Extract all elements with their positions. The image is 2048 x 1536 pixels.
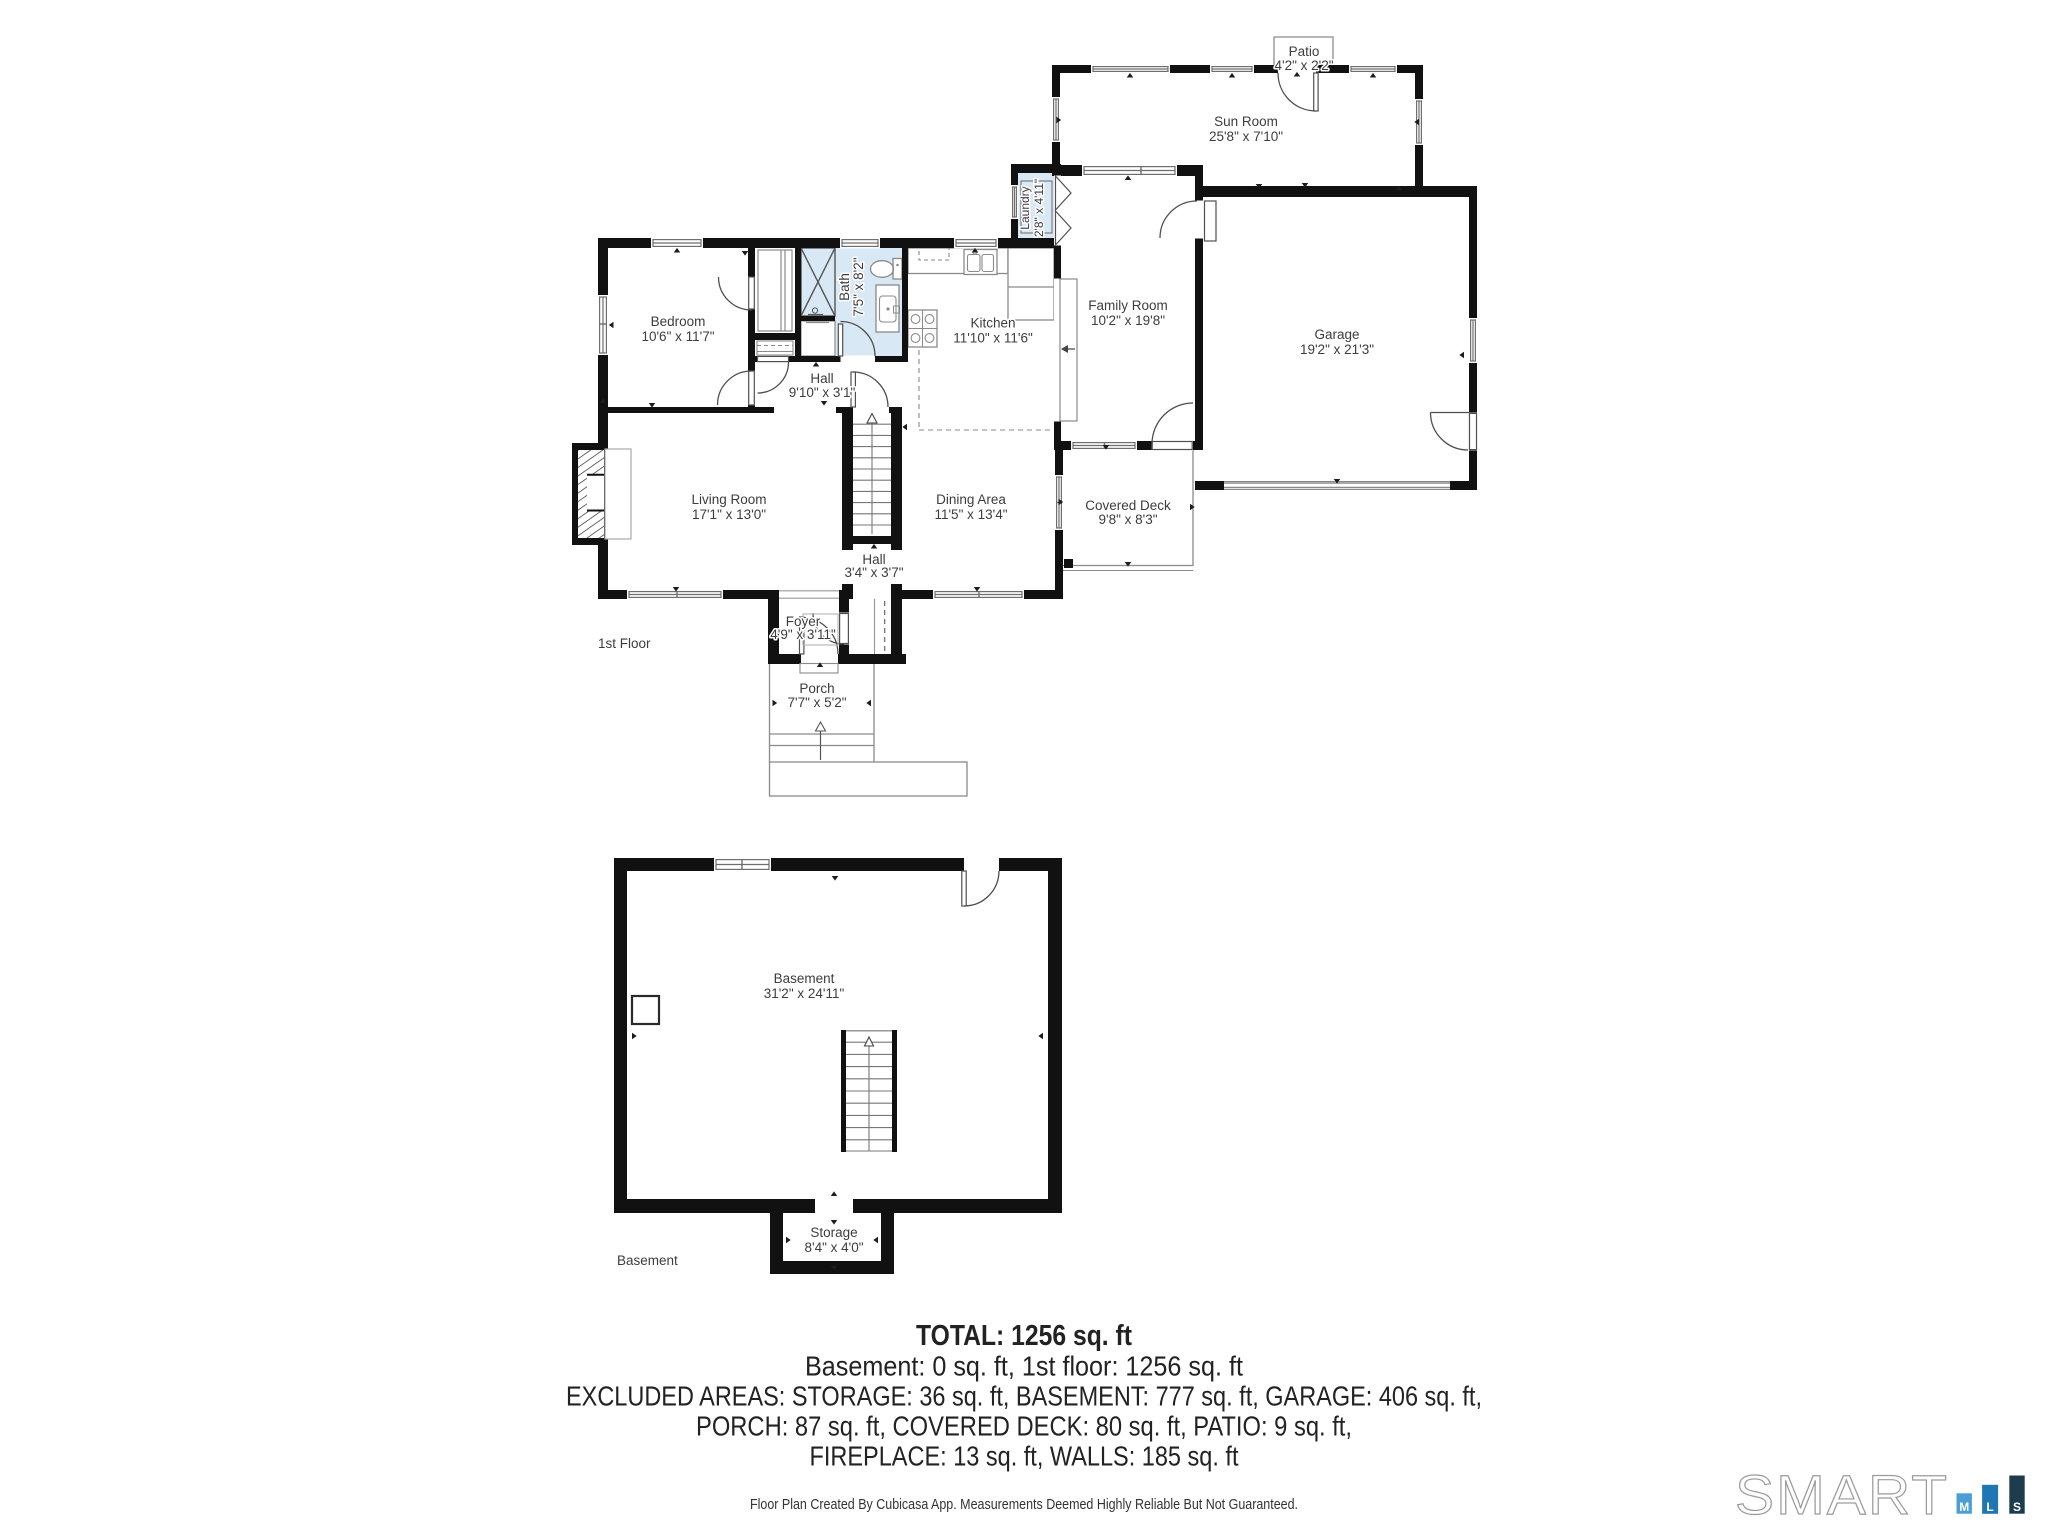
svg-text:Hall: Hall <box>810 371 833 386</box>
svg-text:Dining Area: Dining Area <box>936 492 1006 507</box>
svg-text:Bedroom: Bedroom <box>651 314 706 329</box>
svg-text:1st Floor: 1st Floor <box>598 636 651 651</box>
svg-text:Covered Deck: Covered Deck <box>1085 498 1171 513</box>
svg-text:Patio: Patio <box>1289 44 1320 59</box>
svg-text:Kitchen: Kitchen <box>970 316 1015 331</box>
svg-text:S: S <box>2013 1500 2021 1514</box>
svg-text:10'2" x 19'8": 10'2" x 19'8" <box>1091 313 1165 328</box>
svg-text:Laundry: Laundry <box>1018 186 1032 229</box>
svg-text:8'4" x 4'0": 8'4" x 4'0" <box>804 1240 863 1255</box>
svg-text:9'10" x 3'1": 9'10" x 3'1" <box>789 385 856 400</box>
svg-text:11'5" x 13'4": 11'5" x 13'4" <box>934 507 1007 522</box>
svg-text:31'2" x 24'11": 31'2" x 24'11" <box>764 986 845 1001</box>
svg-text:11'10" x 11'6": 11'10" x 11'6" <box>953 331 1033 346</box>
svg-text:25'8" x 7'10": 25'8" x 7'10" <box>1209 129 1283 144</box>
svg-text:Basement: Basement <box>617 1253 678 1268</box>
svg-text:4'9" x 3'11": 4'9" x 3'11" <box>770 627 836 642</box>
svg-text:Basement: Basement <box>774 971 835 986</box>
svg-text:EXCLUDED AREAS: STORAGE: 36 sq: EXCLUDED AREAS: STORAGE: 36 sq. ft, BASE… <box>566 1381 1482 1412</box>
svg-text:Floor Plan Created By Cubicasa: Floor Plan Created By Cubicasa App. Meas… <box>750 1497 1298 1513</box>
svg-text:9'8" x 8'3": 9'8" x 8'3" <box>1098 512 1157 527</box>
svg-text:L: L <box>1986 1500 1993 1514</box>
svg-text:Basement: 0 sq. ft, 1st floor:: Basement: 0 sq. ft, 1st floor: 1256 sq. … <box>805 1351 1243 1382</box>
svg-text:7'5" x 8'2": 7'5" x 8'2" <box>851 257 866 316</box>
svg-text:17'1" x 13'0": 17'1" x 13'0" <box>692 507 766 522</box>
svg-text:2'8" x 4'11": 2'8" x 4'11" <box>1032 179 1046 237</box>
svg-text:Living Room: Living Room <box>691 492 766 507</box>
svg-text:PORCH: 87 sq. ft, COVERED DECK: PORCH: 87 sq. ft, COVERED DECK: 80 sq. f… <box>696 1411 1352 1442</box>
svg-text:M: M <box>1959 1500 1969 1514</box>
svg-text:SMART: SMART <box>1735 1463 1949 1526</box>
svg-text:10'6" x 11'7": 10'6" x 11'7" <box>641 329 714 344</box>
svg-text:Sun Room: Sun Room <box>1214 114 1278 129</box>
svg-text:4'2" x 2'2": 4'2" x 2'2" <box>1274 58 1333 73</box>
svg-text:19'2" x 21'3": 19'2" x 21'3" <box>1300 342 1374 357</box>
svg-text:FIREPLACE: 13 sq. ft, WALLS: 1: FIREPLACE: 13 sq. ft, WALLS: 185 sq. ft <box>810 1441 1239 1472</box>
svg-text:TOTAL: 1256 sq. ft: TOTAL: 1256 sq. ft <box>916 1320 1132 1352</box>
svg-text:Bath: Bath <box>837 273 852 301</box>
svg-text:Family Room: Family Room <box>1088 298 1168 313</box>
svg-text:Garage: Garage <box>1314 327 1359 342</box>
svg-text:3'4" x 3'7": 3'4" x 3'7" <box>844 565 903 580</box>
svg-text:Porch: Porch <box>799 681 834 696</box>
svg-text:Storage: Storage <box>810 1225 857 1240</box>
svg-text:7'7" x 5'2": 7'7" x 5'2" <box>787 695 846 710</box>
